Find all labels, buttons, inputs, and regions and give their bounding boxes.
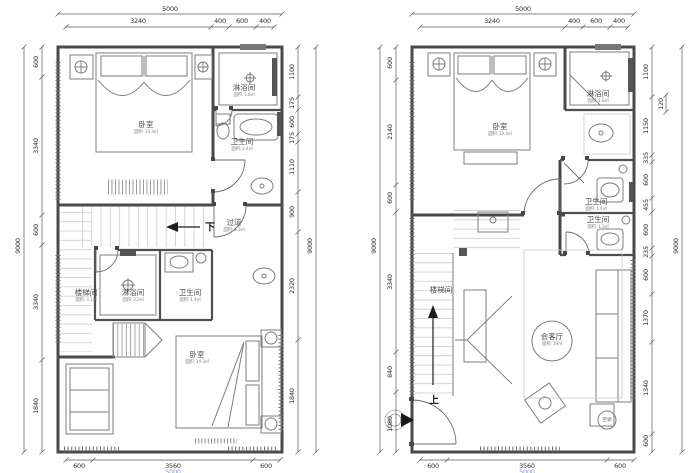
dim-label: 3340 — [386, 274, 394, 290]
stair-newel — [459, 248, 467, 256]
dim-label: 455 — [642, 199, 650, 211]
pillow — [246, 341, 259, 381]
right-bedroom-door — [524, 179, 560, 215]
room-label-stairwell: 楼梯间 — [430, 287, 453, 296]
dim-label: 400 — [259, 17, 271, 25]
bath-panel — [629, 182, 633, 202]
dim-label: 3240 — [130, 17, 146, 25]
floorplan-linework — [0, 0, 694, 473]
dim-label: 840 — [386, 366, 394, 378]
dim-label: 600 — [73, 462, 85, 470]
room-name: 楼梯间 — [75, 289, 98, 298]
room-name: 淋浴间 — [122, 289, 145, 298]
room-label-shower-mid: 淋浴间 面积: 2.2㎡ — [122, 289, 145, 303]
bath-panel — [277, 112, 281, 136]
room-area: 面积: 19㎡ — [541, 342, 564, 347]
room-name: 卫生间 — [587, 216, 610, 225]
dim-label: 600 — [260, 462, 272, 470]
dim-label: 175 — [288, 132, 296, 144]
dim-label: 3340 — [32, 294, 40, 310]
dim-label: 3340 — [32, 138, 40, 154]
ac-label: 空调 — [603, 417, 612, 423]
dim-label: 600 — [427, 462, 439, 470]
room-name: 过道 — [223, 219, 244, 228]
washbasin — [251, 178, 273, 194]
door-posts — [94, 106, 590, 446]
dim-label: 900 — [288, 206, 296, 218]
plant-icon — [265, 418, 277, 430]
room-name: 卧室 — [185, 351, 209, 360]
blanket-lines — [212, 342, 244, 427]
dim-label: 235 — [642, 246, 650, 258]
pillow — [246, 385, 259, 425]
dim-label: 600 — [32, 56, 40, 68]
wardrobe-inner — [70, 368, 109, 430]
dim-label: 600 — [642, 435, 650, 447]
room-label-bath-2: 卫生间 面积: 1.3㎡ — [587, 216, 610, 230]
dim-label: 1100 — [288, 64, 296, 80]
washbasin — [589, 124, 613, 142]
dim-label: 600 — [288, 116, 296, 128]
shower-panel — [628, 58, 633, 92]
room-area: 面积: 14.3㎡ — [185, 360, 209, 365]
pillow — [146, 56, 187, 76]
wardrobe-shelves — [70, 390, 109, 412]
room-label-bath-1: 卫生间 面积: 1.4㎡ — [585, 198, 608, 212]
left-midblock-walls — [95, 250, 212, 320]
dim-label: 600 — [32, 224, 40, 236]
dim-label: 9000 — [370, 238, 378, 254]
room-area: 面积: 1.4㎡ — [585, 207, 608, 212]
shower-panel — [272, 58, 277, 96]
dim-label: 600 — [386, 192, 394, 204]
room-area: 面积: 1.8㎡ — [233, 93, 256, 98]
dim-label: 5000 — [165, 468, 181, 473]
sofa — [596, 270, 631, 402]
dim-label: 600 — [236, 17, 248, 25]
entry-door — [412, 400, 456, 444]
toilet-icon — [217, 123, 229, 139]
washbasin — [253, 268, 275, 284]
dim-label: 9000 — [306, 238, 314, 254]
right-bath1-door — [564, 160, 588, 184]
dim-label: 600 — [614, 462, 626, 470]
room-name: 卫生间 — [585, 198, 608, 207]
room-name: 卧室 — [134, 121, 158, 130]
shower-bench — [120, 251, 136, 256]
armchair — [525, 383, 566, 423]
bathtub-basin — [240, 119, 272, 135]
dim-label: 1080 — [386, 416, 394, 432]
right-bath2-door — [566, 232, 589, 255]
console-table — [464, 290, 486, 362]
room-area: 面积: 13.3㎡ — [488, 132, 512, 137]
down-label: 下 — [205, 219, 215, 234]
room-area: 面积: 2.4㎡ — [231, 147, 254, 152]
dim-label: 1340 — [642, 380, 650, 396]
room-name: 卫生间 — [231, 138, 254, 147]
room-name: 会客厅 — [541, 333, 564, 342]
dim-label: 600 — [590, 17, 602, 25]
room-label-bath-mid: 卫生间 面积: 1.4㎡ — [179, 289, 202, 303]
dimension-lines — [22, 12, 685, 463]
toilet-icon — [196, 253, 206, 263]
dim-label: 400 — [568, 17, 580, 25]
left-bath-door — [213, 160, 245, 192]
dim-label: 9000 — [672, 238, 680, 254]
dim-label: 400 — [613, 17, 625, 25]
doors — [96, 110, 589, 444]
room-label-corridor: 过道 面积: 2.3㎡ — [223, 219, 244, 233]
dim-label: 5000 — [515, 5, 531, 13]
room-area: 面积: 1.8㎡ — [587, 99, 610, 104]
room-area: 面积: 3.1㎡ — [75, 298, 98, 303]
basin-drain — [260, 184, 264, 188]
floorplan-page: 5000 3240 400 600 400 9000 600 3340 600 … — [0, 0, 694, 473]
dim-label: 1840 — [32, 398, 40, 414]
room-name: 卧室 — [488, 123, 512, 132]
pillow — [494, 56, 526, 74]
dark-fixtures — [120, 58, 633, 256]
up-arrow-icon — [428, 305, 438, 318]
room-area: 面积: 2.3㎡ — [223, 228, 244, 233]
shower-head-cross — [600, 70, 612, 82]
room-area: 面积: 2.2㎡ — [122, 298, 145, 303]
dim-label: 2140 — [386, 124, 394, 140]
dim-label: 600 — [642, 224, 650, 236]
dim-label: 175 — [288, 97, 296, 109]
room-label-shower-top: 淋浴间 面积: 1.8㎡ — [233, 84, 256, 98]
basin-drain — [599, 131, 603, 135]
left-shower-door — [96, 250, 118, 272]
room-area: 面积: 1.3㎡ — [587, 225, 610, 230]
furniture — [66, 52, 631, 434]
toilet-bowl — [601, 233, 619, 245]
room-name: 淋浴间 — [587, 90, 610, 99]
room-area: 面积: 1.4㎡ — [179, 298, 202, 303]
room-label-shower: 淋浴间 面积: 1.8㎡ — [587, 90, 610, 104]
dim-label: 400 — [214, 17, 226, 25]
dim-label: 3240 — [484, 17, 500, 25]
dim-label: 600 — [642, 174, 650, 186]
dim-label: 600 — [642, 269, 650, 281]
right-plan-main-partitions — [412, 47, 565, 255]
bathtub — [234, 114, 278, 140]
dim-label: 5000 — [519, 468, 535, 473]
room-label-bedroom: 卧室 面积: 13.3㎡ — [488, 123, 512, 137]
room-name: 楼梯间 — [430, 287, 453, 296]
dim-label: 600 — [386, 57, 394, 69]
sink-icon — [622, 216, 630, 224]
dim-label: 1110 — [288, 159, 296, 175]
counter-outline — [584, 114, 630, 154]
room-name: 淋浴间 — [233, 84, 256, 93]
dim-label: 1840 — [288, 388, 296, 404]
pillow — [458, 56, 490, 74]
plant-icon — [265, 332, 277, 344]
sink-icon — [170, 256, 188, 268]
sofa-cushions — [596, 270, 618, 402]
room-area: 面积: 13.3㎡ — [134, 130, 158, 135]
rug-outline — [524, 250, 622, 398]
room-label-bedroom-bottom: 卧室 面积: 14.3㎡ — [185, 351, 209, 365]
room-label-bedroom-top: 卧室 面积: 13.3㎡ — [134, 121, 158, 135]
dim-label: 1100 — [642, 64, 650, 80]
dim-label: 120 — [657, 98, 665, 110]
dim-label: 9000 — [14, 238, 22, 254]
dim-label: 335 — [642, 152, 650, 164]
room-name: 卫生间 — [179, 289, 202, 298]
toilet-bowl — [601, 183, 619, 197]
dim-label: 1150 — [642, 118, 650, 134]
stair-break-chevron — [145, 323, 162, 357]
up-label: 上 — [429, 392, 439, 407]
dim-label: 1370 — [642, 310, 650, 326]
pillow — [101, 56, 142, 76]
dim-label: 5000 — [162, 5, 178, 13]
sink-icon — [619, 165, 627, 173]
room-label-living: 会客厅 面积: 19㎡ — [541, 333, 564, 347]
dresser — [464, 152, 517, 164]
dim-label: 2320 — [288, 278, 296, 294]
basin-drain — [262, 274, 266, 278]
down-arrow-icon — [166, 222, 178, 232]
room-label-stair: 楼梯间 面积: 3.1㎡ — [75, 289, 98, 303]
wardrobe — [66, 364, 113, 434]
room-label-bath-top: 卫生间 面积: 2.4㎡ — [231, 138, 254, 152]
